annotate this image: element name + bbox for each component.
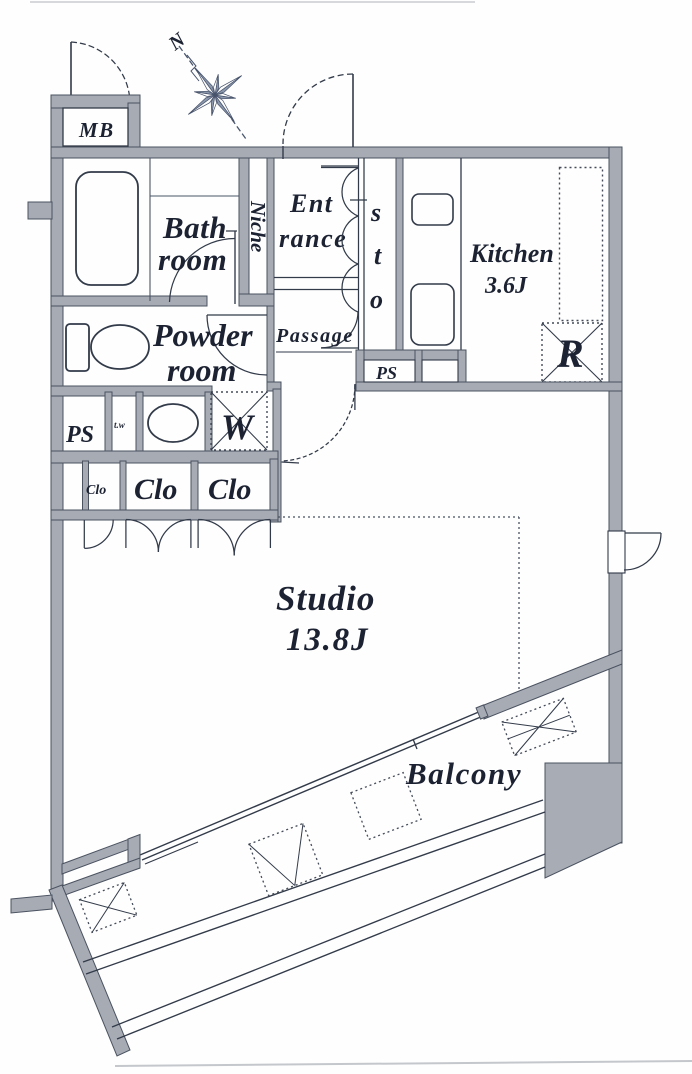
svg-text:t: t [374,241,382,270]
svg-text:Clo: Clo [134,473,177,506]
svg-text:Studio: Studio [276,579,375,618]
svg-text:room: room [158,242,227,277]
svg-text:room: room [167,352,236,388]
svg-text:Powder: Powder [152,317,253,353]
svg-text:o: o [370,285,383,314]
svg-text:Balcony: Balcony [405,756,522,791]
svg-text:PS: PS [65,422,94,448]
svg-text:Niche: Niche [246,200,270,252]
svg-text:Kitchen: Kitchen [469,239,554,268]
svg-text:3.6J: 3.6J [484,273,528,299]
svg-text:W: W [221,407,256,447]
svg-text:Clo: Clo [208,473,251,506]
svg-text:13.8J: 13.8J [286,622,369,658]
svg-text:Passage: Passage [275,325,354,347]
svg-text:Clo: Clo [86,483,106,498]
svg-text:t.w: t.w [114,420,126,430]
svg-text:MB: MB [78,118,115,142]
svg-text:N: N [164,28,191,56]
svg-text:Bath: Bath [162,210,227,245]
svg-text:rance: rance [279,224,347,253]
svg-text:R: R [556,331,584,376]
svg-text:Ent: Ent [289,189,334,218]
svg-text:PS: PS [375,363,397,383]
svg-text:s: s [370,198,381,227]
